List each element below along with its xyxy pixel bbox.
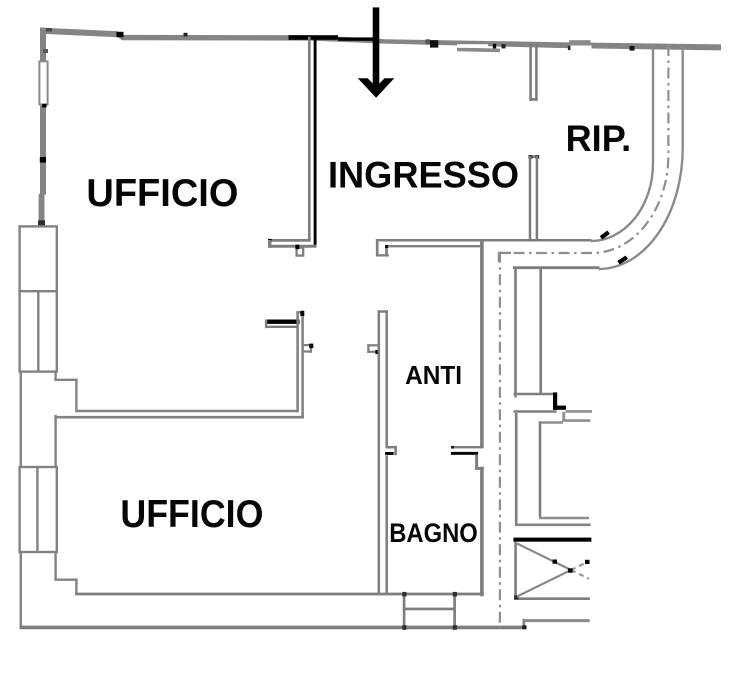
svg-text:ANTI: ANTI xyxy=(405,362,462,390)
svg-text:BAGNO: BAGNO xyxy=(389,518,478,548)
svg-text:UFFICIO: UFFICIO xyxy=(86,172,238,215)
svg-text:UFFICIO: UFFICIO xyxy=(120,493,263,536)
svg-text:RIP.: RIP. xyxy=(566,117,632,159)
svg-text:INGRESSO: INGRESSO xyxy=(328,153,519,195)
